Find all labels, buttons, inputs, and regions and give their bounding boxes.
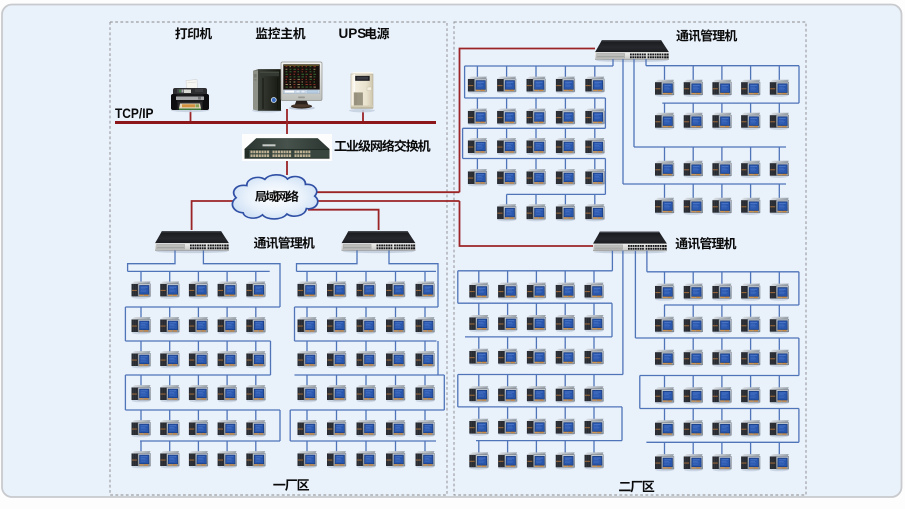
svg-text:TCP/IP: TCP/IP (115, 105, 154, 121)
svg-text:UPS: UPS (339, 26, 367, 41)
